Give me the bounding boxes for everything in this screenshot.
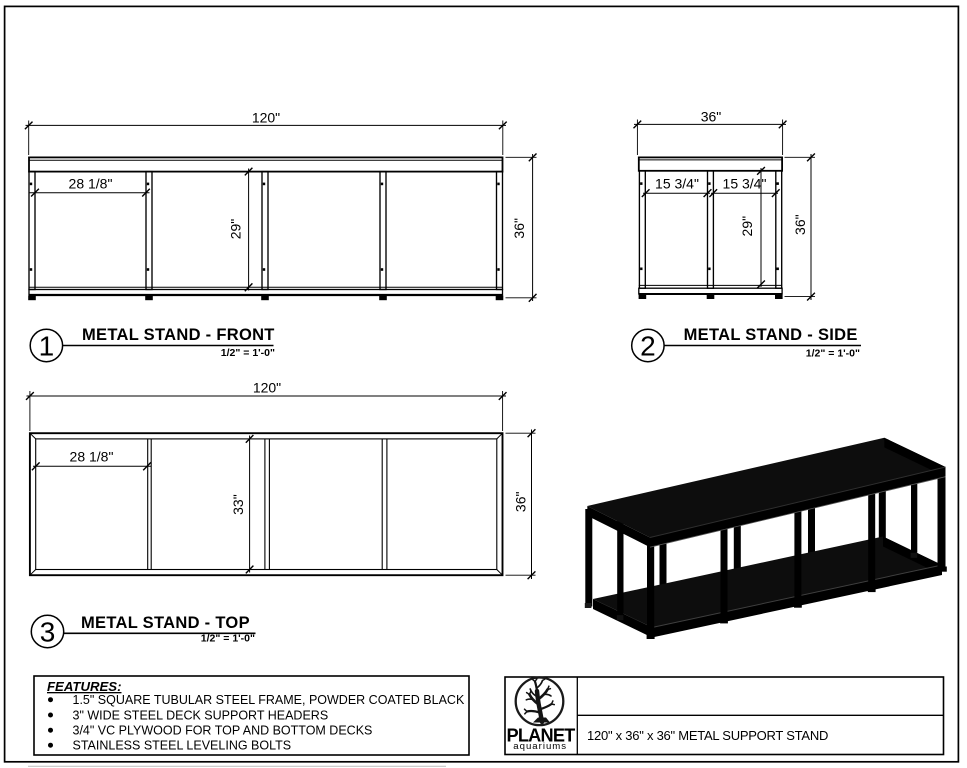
svg-text:15 3/4": 15 3/4" [655,175,699,191]
svg-text:1: 1 [39,331,55,362]
svg-text:15 3/4": 15 3/4" [723,175,767,191]
svg-text:aquariums: aquariums [513,741,567,752]
svg-text:29": 29" [228,219,244,240]
svg-text:3/4" VC PLYWOOD FOR TOP AND BO: 3/4" VC PLYWOOD FOR TOP AND BOTTOM DECKS [73,724,373,738]
svg-text:METAL STAND - FRONT: METAL STAND - FRONT [82,326,275,344]
svg-text:120": 120" [252,109,280,125]
svg-text:29": 29" [739,216,755,237]
svg-text:120": 120" [253,379,281,395]
svg-text:STAINLESS STEEL LEVELING BOLTS: STAINLESS STEEL LEVELING BOLTS [73,739,292,753]
svg-text:METAL STAND - SIDE: METAL STAND - SIDE [684,326,858,344]
svg-text:METAL STAND - TOP: METAL STAND - TOP [81,614,250,632]
svg-text:FEATURES:: FEATURES: [47,679,121,694]
svg-text:36": 36" [513,492,529,513]
svg-text:3" WIDE STEEL DECK SUPPORT HEA: 3" WIDE STEEL DECK SUPPORT HEADERS [73,708,329,722]
svg-text:1.5" SQUARE TUBULAR STEEL FRAM: 1.5" SQUARE TUBULAR STEEL FRAME, POWDER … [73,693,465,707]
svg-text:1/2" = 1'-0": 1/2" = 1'-0" [221,347,275,359]
svg-text:28 1/8": 28 1/8" [70,448,114,464]
svg-text:2: 2 [640,331,656,362]
svg-text:33": 33" [230,494,246,515]
svg-text:36": 36" [701,108,722,124]
svg-text:3: 3 [40,617,56,648]
svg-text:36": 36" [511,218,527,239]
svg-text:28 1/8": 28 1/8" [69,176,113,192]
svg-text:120" x 36" x 36" METAL SUPPORT: 120" x 36" x 36" METAL SUPPORT STAND [587,728,828,743]
svg-text:1/2" = 1'-0": 1/2" = 1'-0" [201,633,255,645]
svg-text:1/2" = 1'-0": 1/2" = 1'-0" [806,348,860,360]
svg-text:36": 36" [792,214,808,235]
